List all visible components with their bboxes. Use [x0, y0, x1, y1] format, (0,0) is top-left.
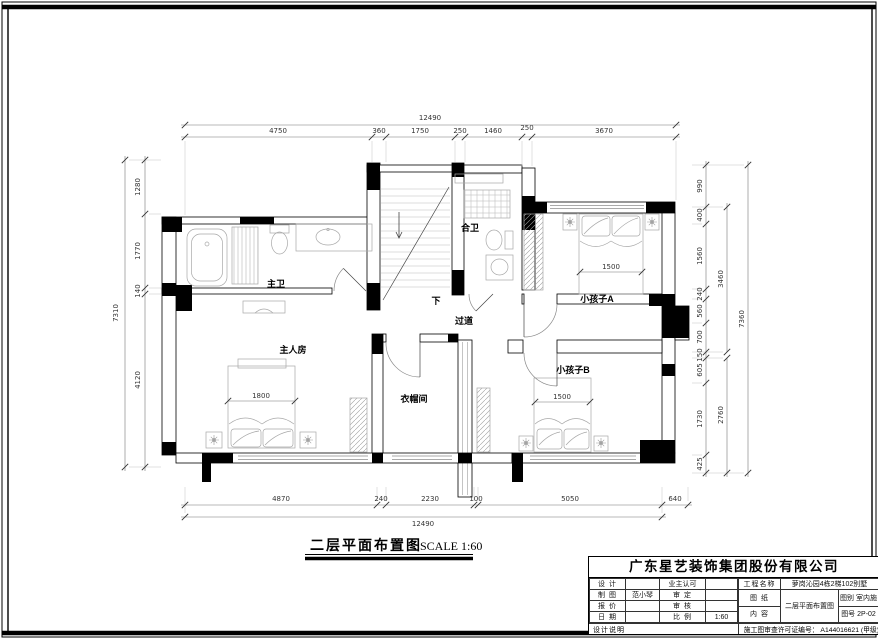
room-label-master-bedroom: 主人房	[279, 344, 306, 355]
value-quote	[626, 601, 660, 612]
sink-basin	[316, 229, 340, 245]
value-draft-by: 范小琴	[626, 590, 660, 601]
dim-label: 12490	[419, 114, 441, 122]
room-label-kid-a: 小孩子A	[579, 293, 614, 304]
dim-label: 4120	[134, 371, 142, 389]
label-verify: 审 定	[660, 590, 706, 601]
room-label-kid-b: 小孩子B	[555, 364, 590, 375]
room-label-corridor: 过道	[455, 315, 473, 326]
bed-kid-a	[579, 214, 643, 294]
label-design: 设 计	[590, 579, 626, 590]
label-owner-approval: 业主认可	[660, 579, 706, 590]
room-label-master-bath: 主卫	[267, 278, 285, 289]
dim-label: 990	[696, 179, 704, 192]
dim-label: 700	[696, 330, 704, 343]
company-name: 广东星艺装饰集团股份有限公司	[589, 557, 878, 578]
title-block-right-table: 工程名称 萝岗沁园4栋2梯102别墅 图 纸 二层平面布置图 图别 室内施 内 …	[738, 578, 878, 623]
dim-label: 425	[696, 457, 704, 470]
value-sheet-content: 二层平面布置图	[781, 590, 839, 623]
dim-label: 640	[668, 495, 681, 503]
toilet-bowl-2	[486, 230, 502, 250]
value-review	[706, 601, 738, 612]
value-design	[626, 579, 660, 590]
bed-kid-b	[534, 378, 591, 452]
wardrobe-closet	[477, 388, 490, 452]
floor-plan-canvas: 12490 4750 360 1750 250 1460 250 3670 48…	[0, 0, 878, 640]
vanity-counter	[296, 224, 372, 251]
dresser	[243, 301, 285, 313]
value-date	[626, 612, 660, 623]
room-labels: 主卫 合卫 小孩子A 主人房 衣帽间 小孩子B 过道 下	[267, 222, 614, 404]
title-block-left-table: 设 计 业主认可 制 图 范小琴 审 定 报 价 审 核 日 期 比 例	[589, 578, 738, 623]
bed-master	[228, 366, 295, 448]
label-project-name: 工程名称	[739, 579, 781, 590]
dim-label: 3670	[595, 127, 613, 135]
title-block-footer: 设计说明 施工图审查许可证编号： A144016621 (甲级)	[589, 623, 878, 635]
dim-label: 1770	[134, 242, 142, 260]
dim-label: 100	[469, 495, 482, 503]
room-label-shared-bath: 合卫	[461, 222, 479, 233]
dim-label: 240	[374, 495, 387, 503]
value-scale: 1:60	[706, 612, 738, 623]
drawing-caption: 二层平面布置图 SCALE 1:60	[305, 537, 482, 559]
value-verify	[706, 590, 738, 601]
dim-label: 1730	[696, 410, 704, 428]
dim-label: 150	[696, 348, 704, 361]
dim-label: 1500	[553, 393, 571, 401]
dim-label: 1460	[484, 127, 502, 135]
value-project-name: 萝岗沁园4栋2梯102别墅	[781, 579, 878, 590]
shower-area	[464, 190, 510, 218]
dim-label: 3460	[717, 270, 725, 288]
dim-label: 360	[372, 127, 385, 135]
label-date: 日 期	[590, 612, 626, 623]
windows	[238, 206, 644, 460]
permit-number: 施工图审查许可证编号： A144016621 (甲级)	[739, 624, 878, 635]
drawing-sheet: 12490 4750 360 1750 250 1460 250 3670 48…	[0, 0, 878, 640]
dim-label: 250	[453, 127, 466, 135]
label-scale: 比 例	[660, 612, 706, 623]
dim-label: 1500	[602, 263, 620, 271]
dim-label: 250	[520, 124, 533, 132]
caption-title: 二层平面布置图	[310, 537, 422, 553]
sink-basin-2	[491, 259, 508, 275]
dim-label: 5050	[561, 495, 579, 503]
wardrobe-kid-a	[524, 214, 543, 290]
dim-label: 605	[696, 363, 704, 376]
dim-label: 4870	[272, 495, 290, 503]
dim-label: 400	[696, 208, 704, 221]
label-drawing-category: 图别 室内施	[839, 590, 878, 607]
label-design-notes: 设计说明	[589, 624, 739, 635]
label-sheet: 图 纸	[739, 590, 781, 607]
dim-label: 12490	[412, 520, 434, 528]
label-content: 内 容	[739, 606, 781, 623]
label-review: 审 核	[660, 601, 706, 612]
staircase	[381, 187, 450, 300]
bed-bench	[238, 359, 286, 368]
toilet-bowl	[272, 232, 288, 254]
fixtures	[187, 174, 659, 452]
dim-label: 1280	[134, 178, 142, 196]
label-drawing-number: 图号 2P-02	[839, 606, 878, 623]
label-quote: 报 价	[590, 601, 626, 612]
dim-label: 1800	[252, 392, 270, 400]
dim-label: 2230	[421, 495, 439, 503]
dim-label: 7310	[112, 304, 120, 322]
dim-label: 2760	[717, 406, 725, 424]
label-draft: 制 图	[590, 590, 626, 601]
dim-label: 1750	[411, 127, 429, 135]
wardrobe-master	[350, 398, 367, 452]
stairs-down-label: 下	[431, 296, 440, 306]
caption-scale: SCALE 1:60	[420, 539, 482, 553]
room-label-closet: 衣帽间	[400, 393, 427, 404]
dim-label: 1560	[696, 247, 704, 265]
dim-label: 560	[696, 304, 704, 317]
value-owner-approval	[706, 579, 738, 590]
toilet-tank-2	[505, 231, 513, 249]
shower-mat	[232, 227, 258, 284]
dim-label: 4750	[269, 127, 287, 135]
dim-label: 140	[134, 284, 142, 297]
title-block: 广东星艺装饰集团股份有限公司 设 计 业主认可 制 图 范小琴 审 定 报 价 …	[588, 556, 878, 635]
dim-label: 7360	[738, 310, 746, 328]
dim-label: 240	[696, 287, 704, 300]
stair-direction-arrow	[396, 212, 402, 238]
